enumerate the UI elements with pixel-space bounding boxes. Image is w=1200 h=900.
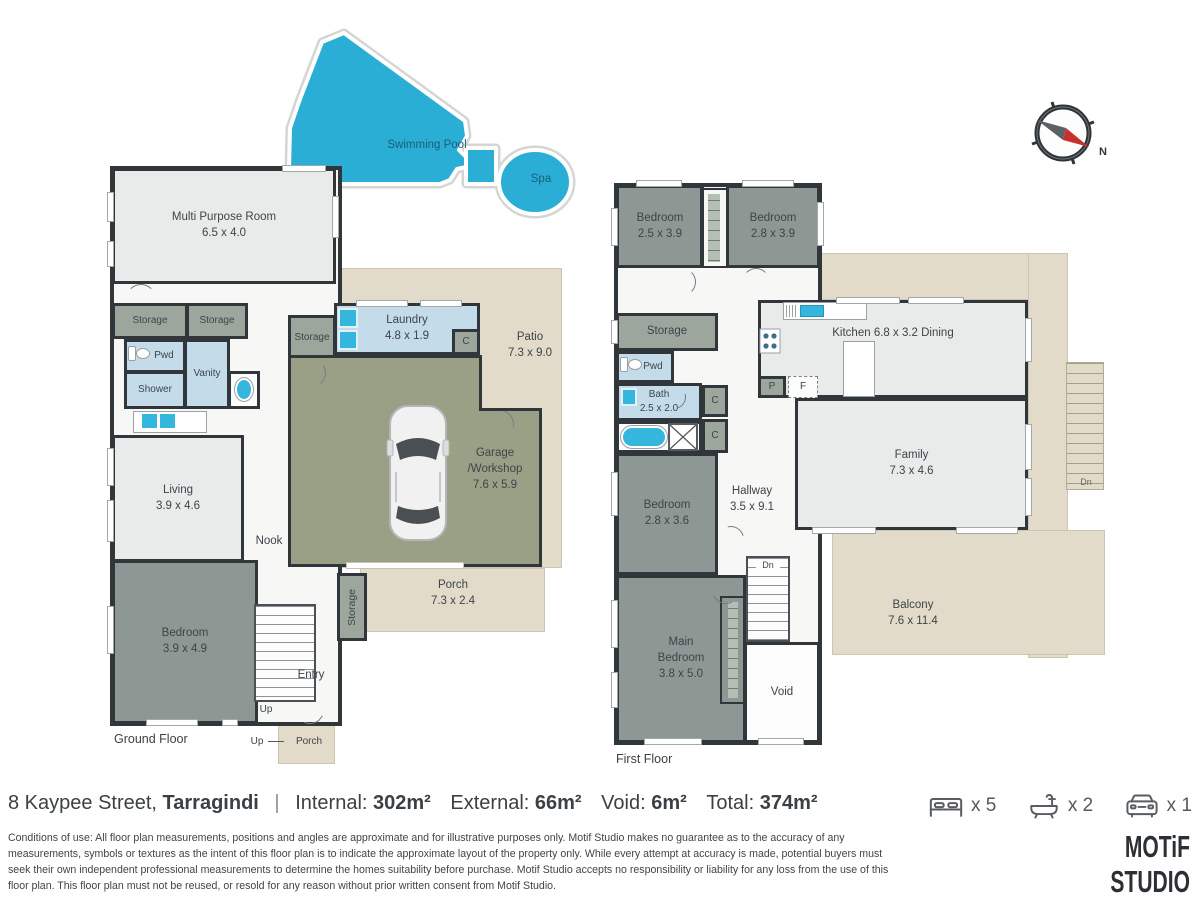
- balcony-label: Balcony 7.6 x 11.4: [866, 598, 960, 630]
- basin-icon: [235, 378, 253, 401]
- room-label: C: [462, 335, 469, 349]
- nook-label: Nook: [246, 534, 292, 550]
- room-multi-purpose: Multi Purpose Room 6.5 x 4.0: [112, 168, 336, 284]
- room-label: P: [769, 380, 776, 394]
- room-void: Void: [744, 642, 820, 743]
- room-bedroom3: Bedroom 2.8 x 3.6: [616, 453, 718, 575]
- wardrobe: [720, 596, 746, 704]
- address-bar: 8 Kaypee Street, Tarragindi | Internal: …: [8, 792, 938, 815]
- window: [836, 297, 900, 304]
- window: [332, 196, 339, 238]
- room-closet-ground: C: [452, 329, 480, 355]
- room-label: Shower: [138, 383, 172, 397]
- room-label: F: [800, 380, 806, 394]
- internal-value: 302m²: [373, 792, 431, 814]
- first-floor-label: First Floor: [616, 752, 672, 766]
- address-separator: |: [274, 792, 279, 814]
- toilet-icon: [128, 346, 136, 361]
- room-shower: Shower: [124, 371, 186, 409]
- external-value: 66m²: [535, 792, 582, 814]
- shower-box-icon: [668, 423, 698, 451]
- window: [420, 300, 462, 307]
- front-porch-label: Porch: [284, 735, 334, 749]
- window: [107, 606, 114, 654]
- arrow-line-icon: [268, 741, 284, 742]
- void-label: Void:: [601, 792, 645, 814]
- disclaimer-text: Conditions of use: All floor plan measur…: [8, 831, 902, 895]
- car-icon: [1124, 792, 1160, 820]
- window: [107, 448, 114, 486]
- window: [1025, 478, 1032, 516]
- beds-count: x 5: [971, 795, 996, 817]
- bed-icon: [928, 792, 964, 820]
- room-label: Bedroom 2.8 x 3.6: [644, 498, 691, 530]
- bath-icon: [1027, 791, 1061, 821]
- room-label: Multi Purpose Room 6.5 x 4.0: [172, 210, 276, 242]
- front-up-label: Up: [246, 735, 268, 749]
- toilet-bowl-icon: [136, 348, 150, 359]
- sliding-door: [812, 527, 876, 534]
- room-label: Storage: [199, 314, 234, 328]
- window: [636, 180, 682, 187]
- svg-text:N: N: [1099, 146, 1107, 158]
- hallway-label: Hallway 3.5 x 9.1: [720, 484, 784, 516]
- door-arc: [126, 284, 156, 314]
- room-vanity: Vanity: [184, 339, 230, 409]
- stairs-up-label: Up: [254, 703, 278, 717]
- garage-door-opening: [346, 562, 464, 569]
- door-arc: [668, 268, 696, 296]
- appliance-icon: [160, 414, 175, 428]
- room-bedroom1: Bedroom 2.5 x 3.9: [616, 185, 704, 268]
- room-storage-ff: Storage: [616, 313, 718, 351]
- void-value: 6m²: [651, 792, 687, 814]
- beds-stat: x 5: [928, 792, 996, 820]
- stairs-external: [1066, 362, 1104, 490]
- stairs-dn-label: Dn: [756, 559, 780, 571]
- baths-stat: x 2: [1027, 791, 1093, 821]
- kitchen-label: Kitchen 6.8 x 3.2 Dining: [768, 326, 1018, 342]
- external-label: External:: [450, 792, 529, 814]
- total-label: Total:: [706, 792, 754, 814]
- room-pantry: P: [758, 376, 786, 398]
- room-family: Family 7.3 x 4.6: [795, 398, 1028, 530]
- sliding-door: [956, 527, 1018, 534]
- ground-floor-label: Ground Floor: [114, 732, 188, 746]
- room-bedroom-ground: Bedroom 3.9 x 4.9: [112, 560, 258, 724]
- stairs-dn-external-label: Dn: [1072, 476, 1100, 488]
- room-storage-vertical: Storage: [337, 573, 367, 641]
- room-label: Living 3.9 x 4.6: [156, 483, 200, 515]
- cars-stat: x 1: [1124, 792, 1192, 820]
- floorplan-page: Swimming Pool Spa N Multi Purpose Room 6…: [0, 0, 1200, 900]
- room-closet1: C: [702, 385, 728, 417]
- spa-label: Spa: [524, 173, 558, 185]
- patio-label: Patio 7.3 x 9.0: [488, 330, 572, 362]
- window: [742, 180, 794, 187]
- room-living: Living 3.9 x 4.6: [112, 435, 244, 562]
- window: [222, 719, 238, 726]
- shower-icon: [621, 388, 637, 406]
- window: [611, 472, 618, 516]
- washer-icon: [338, 308, 358, 328]
- room-label: Void: [771, 685, 793, 701]
- address-street: 8 Kaypee Street,: [8, 792, 157, 814]
- motif-studio-logo: MOTiF STUDIO: [1065, 830, 1190, 899]
- room-label: Storage: [647, 324, 687, 340]
- room-label: Bedroom 2.8 x 3.9: [750, 211, 797, 243]
- window: [146, 719, 198, 726]
- room-label: Bedroom 3.9 x 4.9: [162, 626, 209, 658]
- window: [758, 738, 804, 745]
- compass-icon: N: [1025, 100, 1120, 172]
- drainer-icon: [786, 305, 797, 317]
- room-label: Bedroom 2.5 x 3.9: [637, 211, 684, 243]
- room-label: Family 7.3 x 4.6: [889, 448, 933, 480]
- room-label: Laundry 4.8 x 1.9: [385, 313, 429, 345]
- window: [644, 738, 702, 745]
- window: [1025, 424, 1032, 470]
- cars-count: x 1: [1167, 795, 1192, 817]
- room-label: C: [711, 429, 718, 443]
- room-label: Storage: [345, 589, 359, 626]
- room-label: C: [711, 394, 718, 408]
- toilet-icon: [620, 357, 628, 372]
- kitchen-island: [843, 341, 875, 397]
- room-closet2: C: [702, 419, 728, 453]
- balcony-bottom: [832, 530, 1105, 655]
- sink-icon: [800, 305, 824, 317]
- room-label: Main Bedroom 3.8 x 5.0: [658, 635, 705, 683]
- baths-count: x 2: [1068, 795, 1093, 817]
- appliance-icon: [142, 414, 157, 428]
- window: [817, 202, 824, 246]
- window: [611, 208, 618, 246]
- window: [107, 500, 114, 542]
- room-storage-mid: Storage: [288, 315, 336, 360]
- porch-label: Porch 7.3 x 2.4: [408, 578, 498, 610]
- dryer-icon: [338, 330, 358, 350]
- window: [107, 241, 114, 267]
- car-top-icon: [386, 402, 450, 544]
- garage-label: Garage /Workshop 7.6 x 5.9: [452, 446, 538, 494]
- room-bedroom2: Bedroom 2.8 x 3.9: [726, 185, 820, 268]
- window: [611, 600, 618, 648]
- stairs-up: [254, 604, 316, 702]
- cooktop-icon: [759, 328, 781, 354]
- window: [1025, 318, 1032, 362]
- room-label: Storage: [132, 314, 167, 328]
- total-value: 374m²: [760, 792, 818, 814]
- stats-row: x 5 x 2: [928, 791, 1192, 821]
- swimming-pool-label: Swimming Pool: [367, 139, 487, 151]
- window: [908, 297, 964, 304]
- internal-label: Internal:: [295, 792, 367, 814]
- toilet-bowl-icon: [628, 359, 642, 370]
- bathtub-icon: [621, 426, 667, 448]
- address-suburb: Tarragindi: [163, 792, 259, 814]
- window: [356, 300, 408, 307]
- room-storage-b: Storage: [186, 303, 248, 339]
- room-label: Vanity: [193, 367, 220, 381]
- window: [107, 192, 114, 222]
- window: [611, 672, 618, 708]
- room-label: Storage: [294, 331, 329, 345]
- window: [611, 320, 618, 344]
- wardrobe: [700, 188, 728, 268]
- entry-label: Entry: [286, 668, 336, 684]
- window: [282, 165, 326, 172]
- fridge-space: F: [788, 376, 818, 398]
- door-arc: [742, 268, 770, 296]
